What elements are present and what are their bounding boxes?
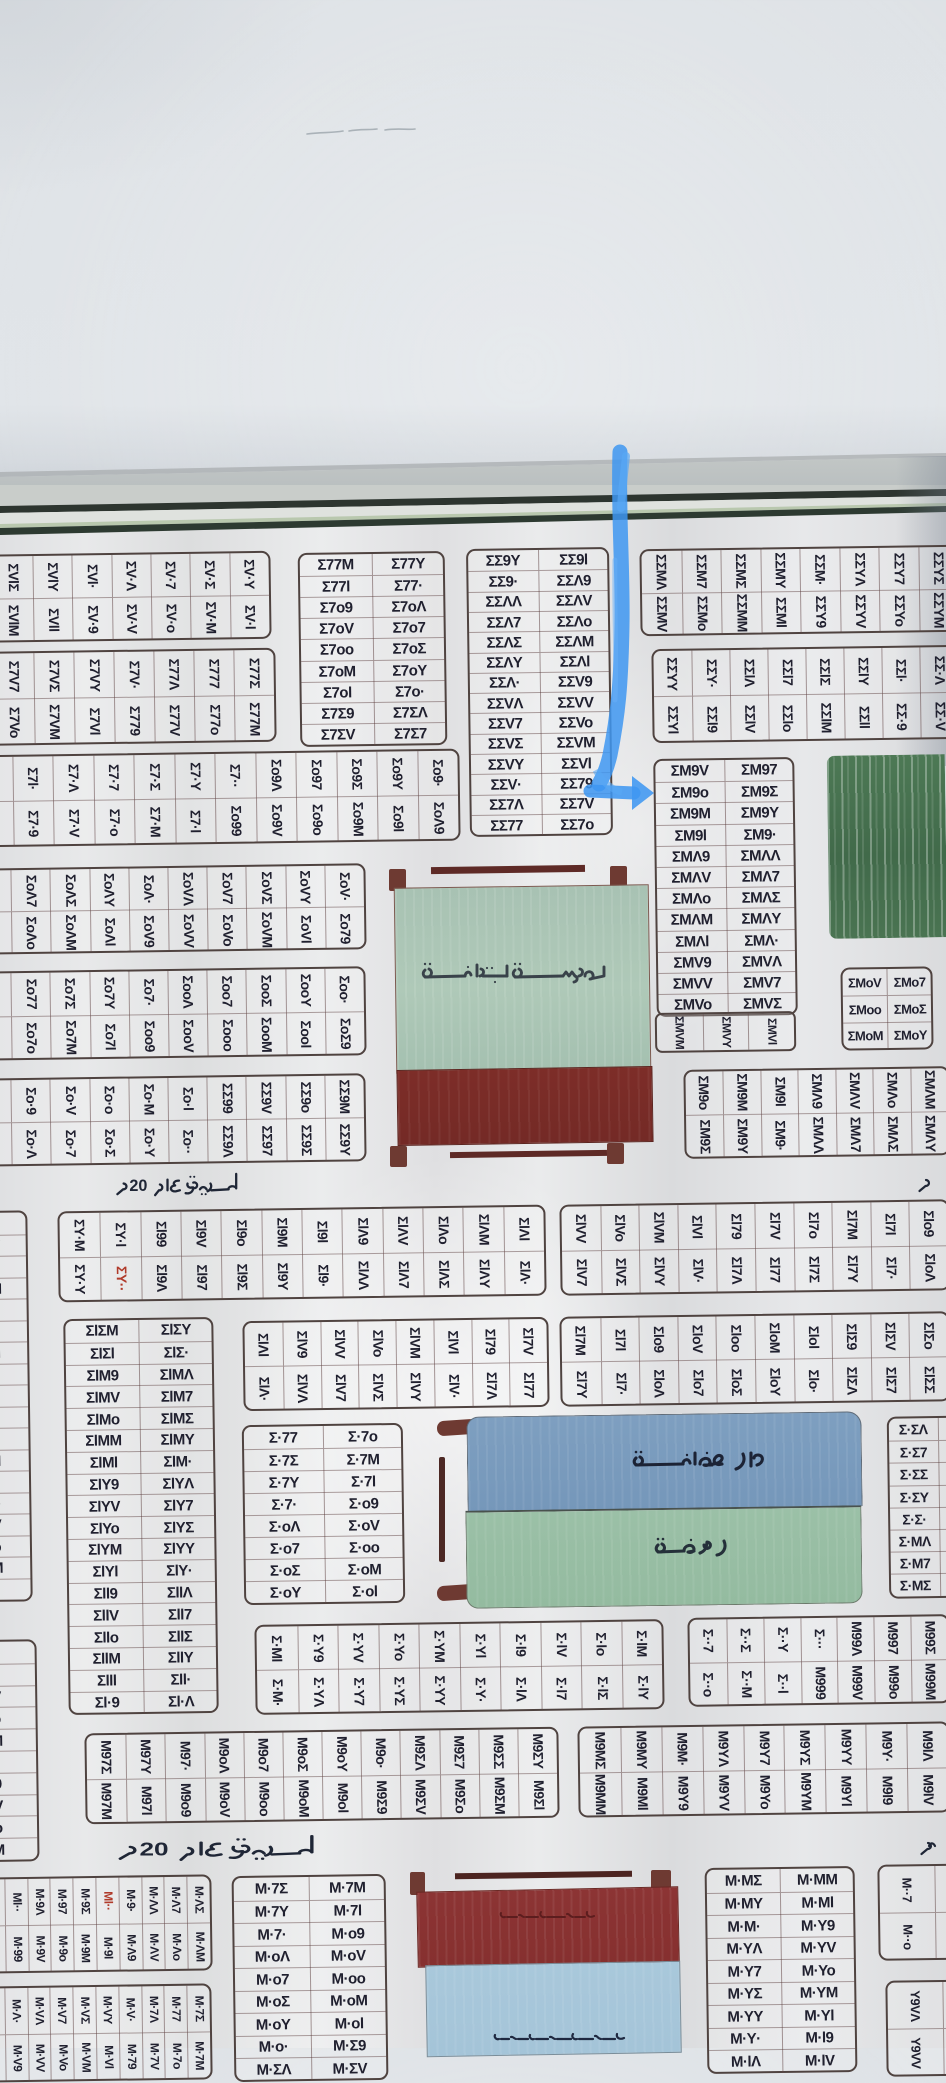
svg-text:20: 20 [129, 1177, 147, 1195]
svg-text:20: 20 [140, 1839, 169, 1859]
